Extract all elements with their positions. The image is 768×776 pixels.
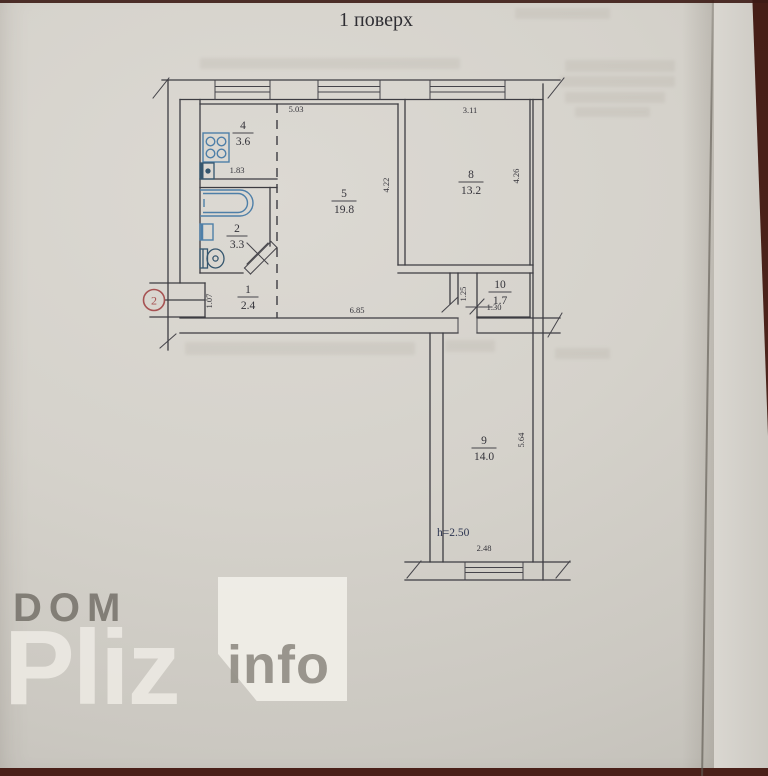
wall-break-mark xyxy=(556,561,570,578)
svg-text:3.3: 3.3 xyxy=(230,239,245,251)
dim-room5-depth: 4.22 xyxy=(381,178,391,193)
window-icon xyxy=(430,87,505,93)
dim-room10-width: 1.30 xyxy=(487,302,502,312)
room-label-8: 8 13.2 xyxy=(459,169,483,197)
svg-text:1: 1 xyxy=(245,284,251,296)
dim-kitchen-width: 1.83 xyxy=(230,165,245,175)
dim-room8-width: 3.11 xyxy=(463,105,478,115)
dim-corridor-width: 1.25 xyxy=(458,287,468,302)
red-marker-2: 2 xyxy=(144,290,165,311)
dim-room5-width: 6.85 xyxy=(350,305,365,315)
dim-room9-depth: 5.64 xyxy=(516,432,526,448)
svg-text:14.0: 14.0 xyxy=(474,451,494,463)
room-label-1: 1 2.4 xyxy=(238,284,258,312)
ceiling-height-note: h=2.50 xyxy=(437,527,470,539)
svg-text:2: 2 xyxy=(234,223,240,235)
stove-icon xyxy=(203,133,229,162)
marker-label: 2 xyxy=(151,294,157,308)
svg-text:3.6: 3.6 xyxy=(236,136,251,148)
photo-of-floor-plan: 1 поверх xyxy=(0,0,768,768)
bathroom-corner-door-icon xyxy=(245,242,278,275)
svg-text:2.4: 2.4 xyxy=(241,300,256,312)
dim-room8-depth: 4.26 xyxy=(511,169,521,184)
top-wall xyxy=(153,78,564,100)
room-label-9: 9 14.0 xyxy=(472,435,496,463)
svg-text:9: 9 xyxy=(481,435,487,447)
right-wall xyxy=(533,84,543,580)
watermark-info: info xyxy=(227,634,330,696)
wall-break-mark xyxy=(407,561,421,578)
kitchen-sink-icon xyxy=(200,163,214,179)
room-label-2: 2 3.3 xyxy=(227,223,247,251)
svg-text:13.2: 13.2 xyxy=(461,185,481,197)
window-icon xyxy=(318,87,380,93)
svg-text:19.8: 19.8 xyxy=(334,204,354,216)
window-icon xyxy=(215,87,270,93)
dim-room9-width: 2.48 xyxy=(477,543,492,553)
room-label-5: 5 19.8 xyxy=(332,188,356,216)
bathtub-icon xyxy=(200,190,253,216)
entrance-door-opening xyxy=(150,283,205,317)
toilet-icon xyxy=(200,249,224,268)
dim-entry-width: 1.07 xyxy=(204,294,214,309)
left-wall xyxy=(160,80,180,350)
window-icon xyxy=(465,568,523,573)
paper-shadow xyxy=(682,0,714,768)
svg-text:8: 8 xyxy=(468,169,474,181)
svg-text:4: 4 xyxy=(240,120,246,132)
room-label-4: 4 3.6 xyxy=(233,120,253,148)
dim-top-span: 5.03 xyxy=(289,104,304,114)
svg-text:10: 10 xyxy=(494,279,506,291)
svg-text:5: 5 xyxy=(341,188,347,200)
table-background-top xyxy=(0,0,768,3)
corridor-walls xyxy=(442,273,458,312)
page-title: 1 поверх xyxy=(339,9,413,31)
watermark-pliz: Pliz xyxy=(4,608,179,729)
wall-break-mark xyxy=(153,78,169,98)
washbasin-icon xyxy=(200,224,213,240)
wall-break-mark xyxy=(548,78,564,98)
